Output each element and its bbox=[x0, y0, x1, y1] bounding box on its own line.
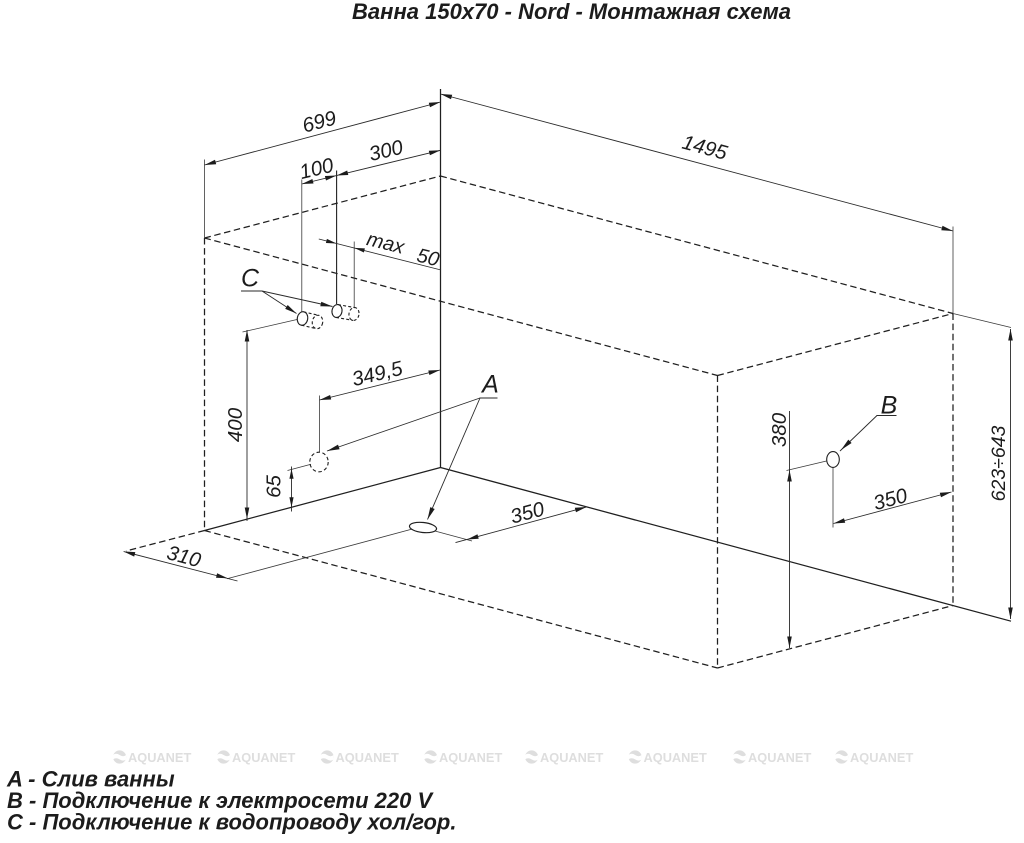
svg-text:65: 65 bbox=[263, 475, 286, 498]
svg-text:380: 380 bbox=[768, 412, 791, 447]
svg-text:AQUANET: AQUANET bbox=[540, 750, 603, 765]
svg-text:AQUANET: AQUANET bbox=[232, 750, 295, 765]
svg-text:B: B bbox=[881, 392, 898, 420]
svg-text:AQUANET: AQUANET bbox=[128, 750, 191, 765]
svg-text:400: 400 bbox=[224, 407, 247, 442]
svg-text:AQUANET: AQUANET bbox=[439, 750, 502, 765]
svg-text:A: A bbox=[480, 371, 499, 399]
svg-text:C - Подключение к водопроводу: C - Подключение к водопроводу хол/гор. bbox=[7, 810, 457, 835]
svg-text:AQUANET: AQUANET bbox=[850, 750, 913, 765]
svg-text:623÷643: 623÷643 bbox=[988, 425, 1010, 501]
svg-text:AQUANET: AQUANET bbox=[644, 750, 707, 765]
svg-text:AQUANET: AQUANET bbox=[748, 750, 811, 765]
svg-text:Ванна 150х70 - Nord - Монтажна: Ванна 150х70 - Nord - Монтажная схема bbox=[352, 0, 791, 24]
svg-text:C: C bbox=[241, 265, 260, 293]
svg-text:AQUANET: AQUANET bbox=[336, 750, 399, 765]
